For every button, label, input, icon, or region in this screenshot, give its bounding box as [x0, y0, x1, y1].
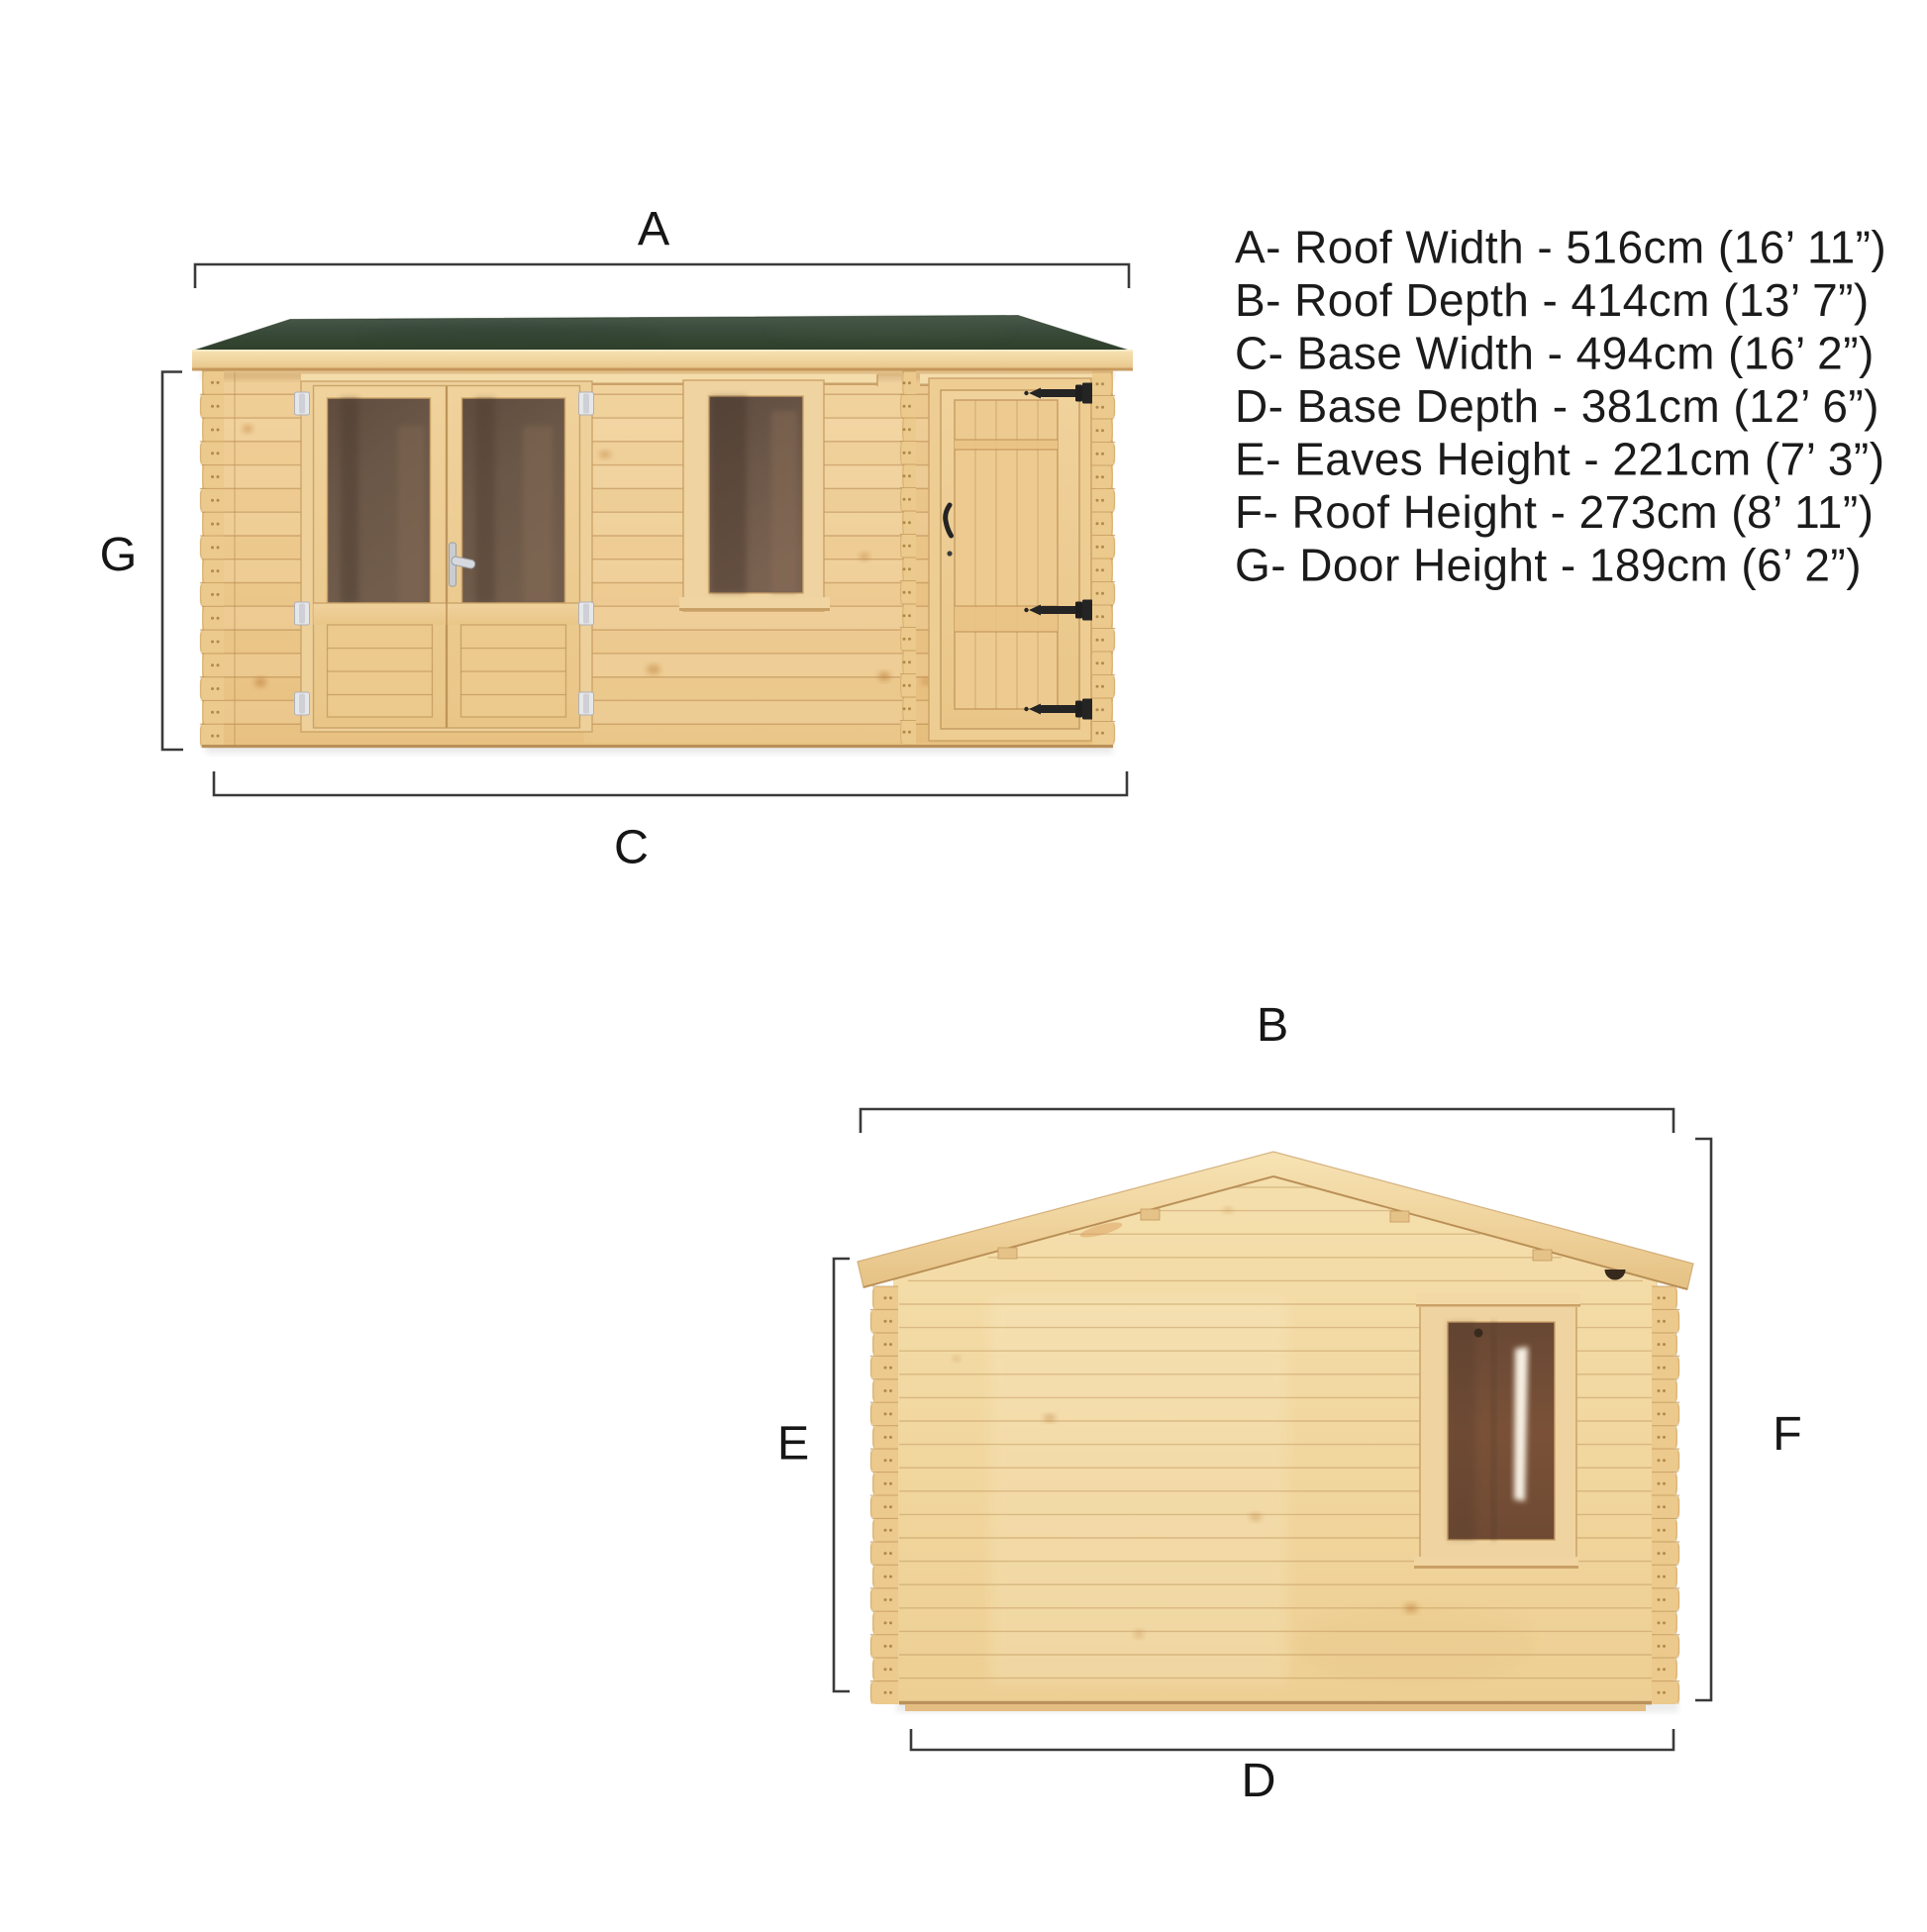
svg-text:F: F	[1773, 1407, 1802, 1461]
svg-text:F- Roof Height - 273cm (8’ 11”: F- Roof Height - 273cm (8’ 11”)	[1235, 486, 1874, 538]
svg-text:C: C	[614, 821, 649, 874]
svg-text:E: E	[777, 1417, 809, 1471]
svg-text:A- Roof Width - 516cm (16’ 11”: A- Roof Width - 516cm (16’ 11”)	[1235, 222, 1886, 273]
svg-text:G- Door Height - 189cm (6’ 2”): G- Door Height - 189cm (6’ 2”)	[1235, 540, 1862, 591]
svg-text:B: B	[1257, 998, 1288, 1052]
svg-text:B- Roof Depth - 414cm (13’ 7”): B- Roof Depth - 414cm (13’ 7”)	[1235, 274, 1870, 326]
svg-text:G: G	[100, 528, 138, 581]
svg-text:D: D	[1241, 1754, 1275, 1807]
svg-text:A: A	[638, 202, 670, 255]
svg-text:C- Base Width - 494cm (16’ 2”): C- Base Width - 494cm (16’ 2”)	[1235, 328, 1875, 379]
svg-text:D- Base Depth - 381cm (12’ 6”): D- Base Depth - 381cm (12’ 6”)	[1235, 380, 1879, 432]
svg-text:E- Eaves Height - 221cm (7’ 3”: E- Eaves Height - 221cm (7’ 3”)	[1235, 434, 1884, 485]
